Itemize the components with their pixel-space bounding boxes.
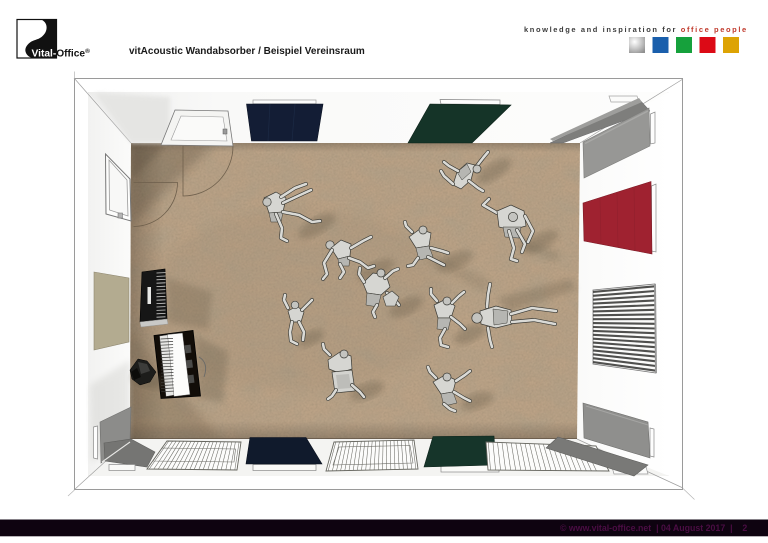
svg-text:vitAcoustic Wandabsorber / Bei: vitAcoustic Wandabsorber / Beispiel Vere…	[129, 46, 365, 57]
svg-text:Vital-: Vital-	[32, 49, 57, 60]
svg-text:knowledge and inspiration for: knowledge and inspiration for office peo…	[524, 25, 748, 34]
svg-text:© www.vital-office.net | 04: © www.vital-office.net | 04 August 2017 …	[560, 523, 747, 533]
